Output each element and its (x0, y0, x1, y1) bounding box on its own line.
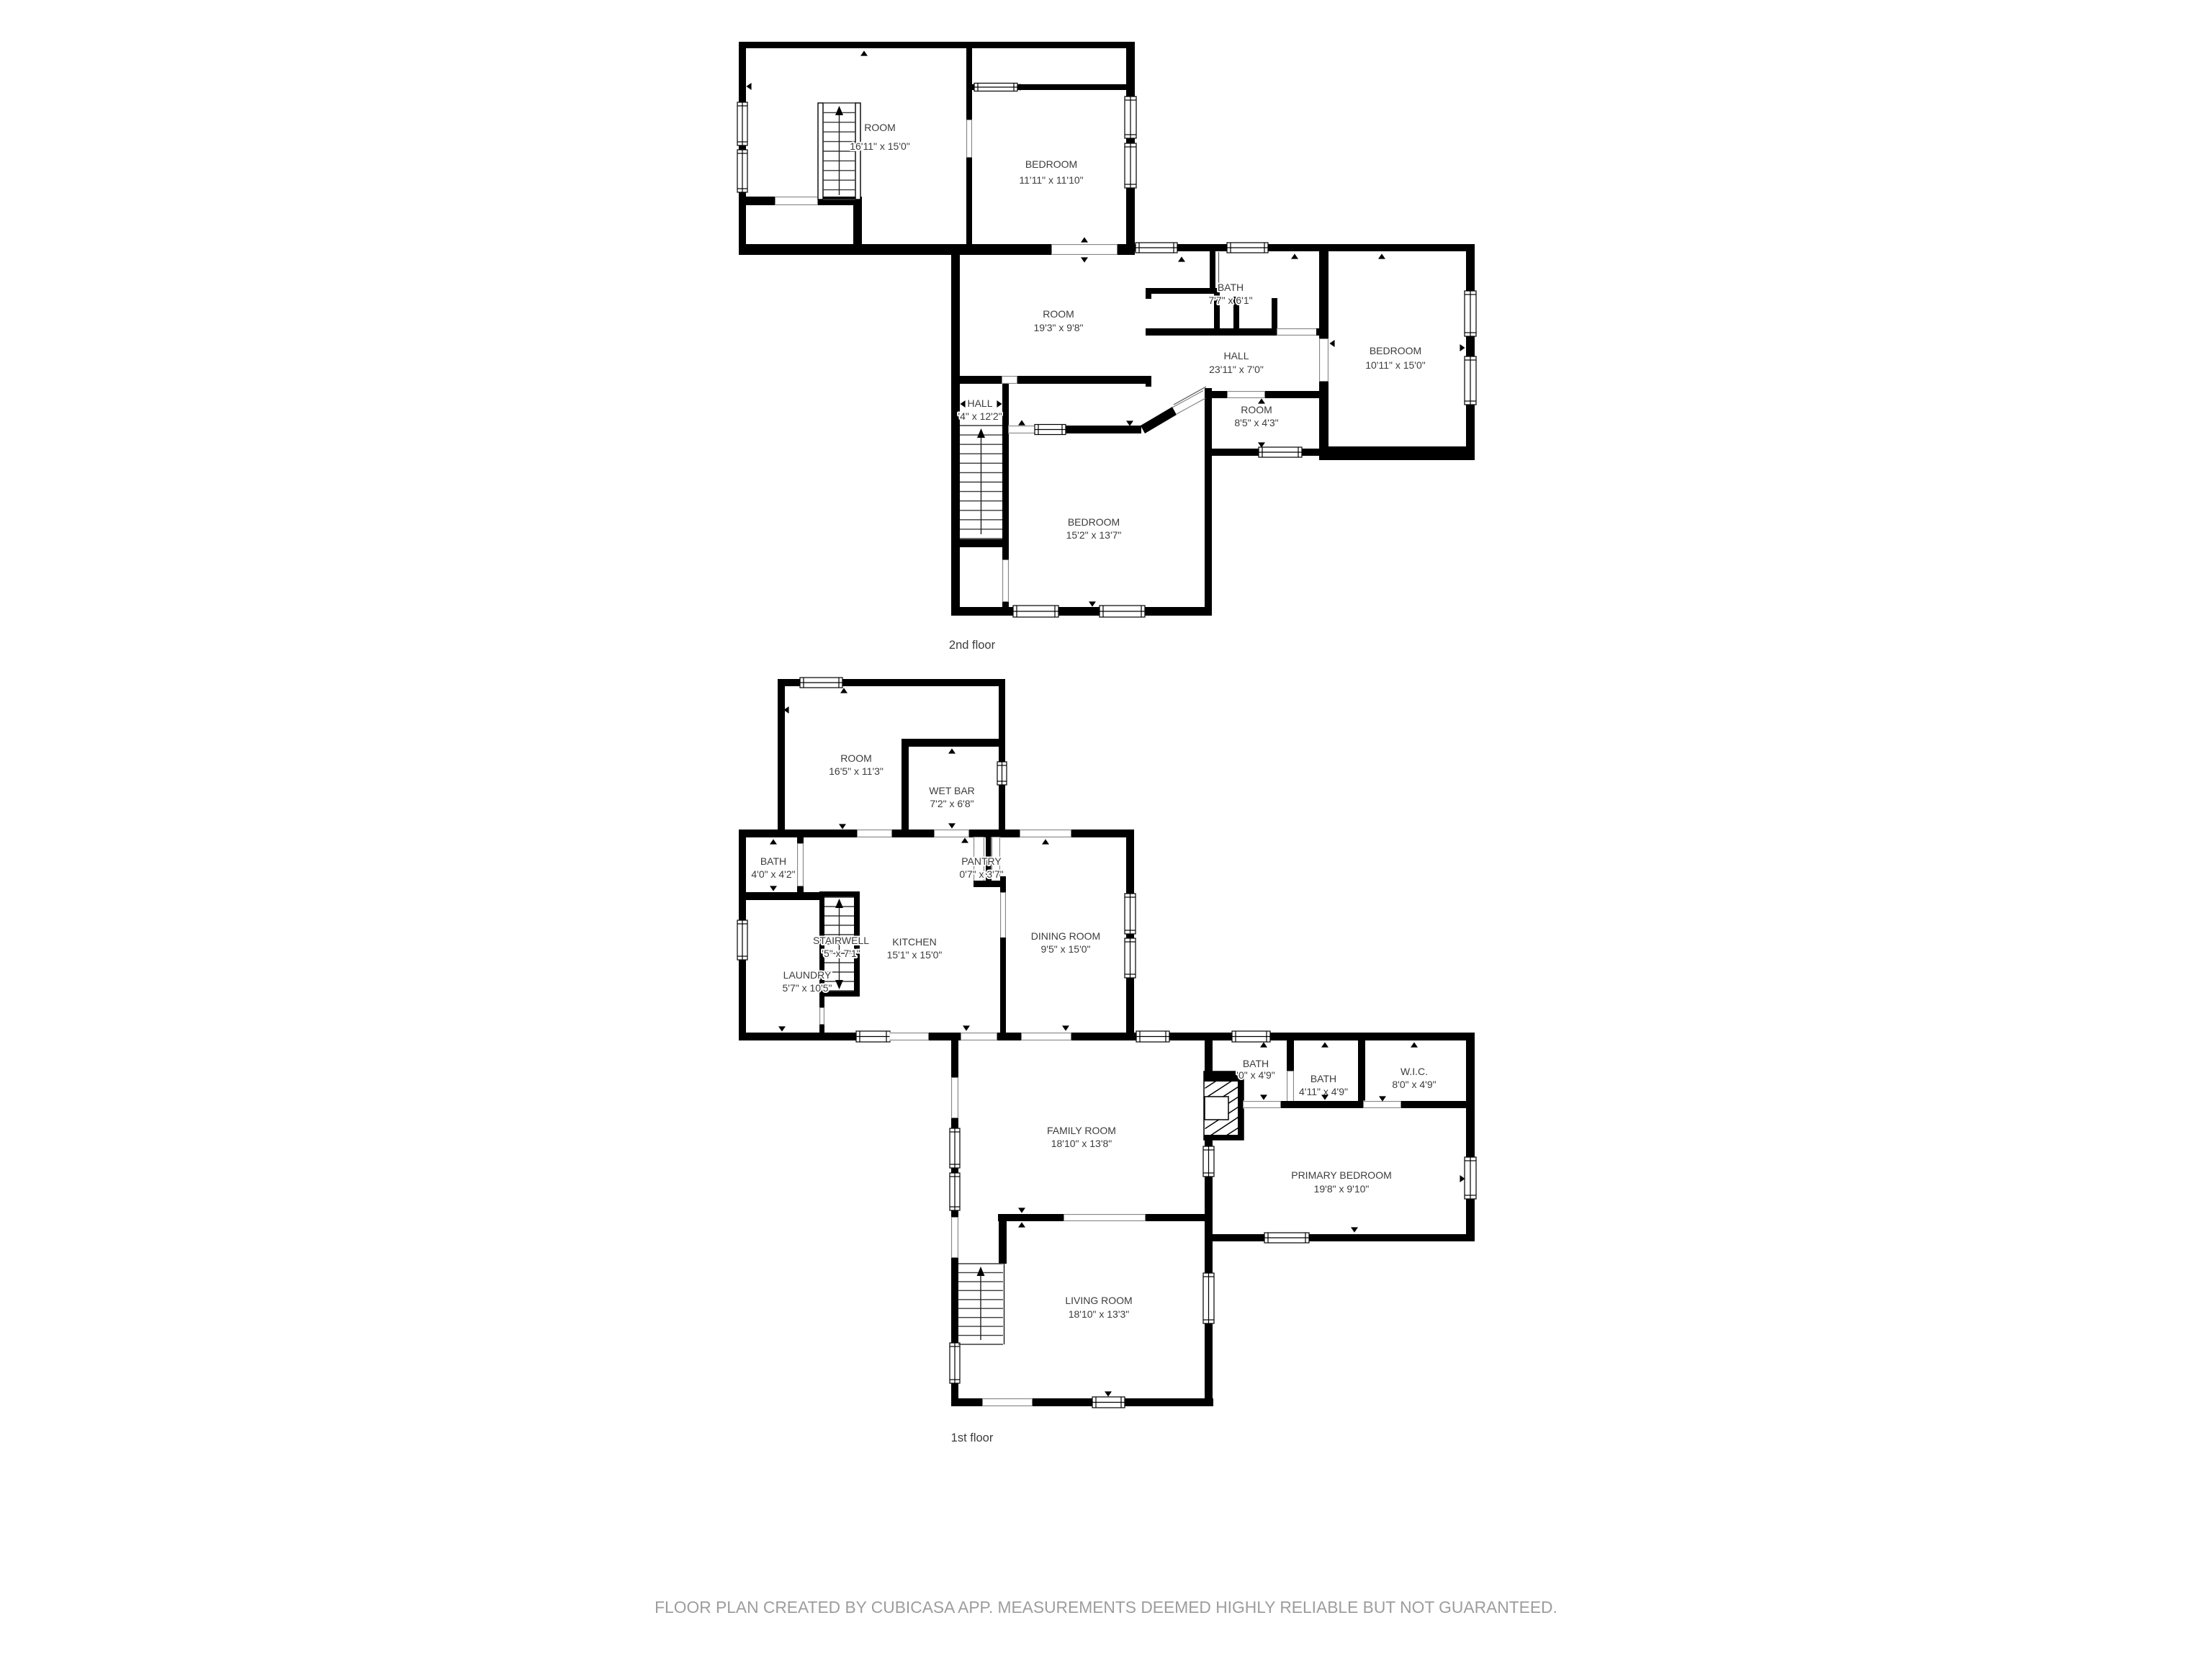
svg-text:HALL: HALL (1223, 350, 1249, 361)
svg-text:18'10" x 13'8": 18'10" x 13'8" (1051, 1138, 1112, 1149)
svg-text:BATH: BATH (1243, 1058, 1269, 1069)
svg-text:7'7" x 6'1": 7'7" x 6'1" (1208, 295, 1252, 306)
svg-text:BEDROOM: BEDROOM (1068, 516, 1120, 528)
svg-text:7'2" x 6'8": 7'2" x 6'8" (930, 798, 974, 809)
svg-text:W.I.C.: W.I.C. (1401, 1066, 1428, 1077)
svg-text:WET BAR: WET BAR (929, 785, 975, 796)
svg-text:10'11" x 15'0": 10'11" x 15'0" (1365, 359, 1426, 371)
svg-text:15'1" x 15'0": 15'1" x 15'0" (887, 949, 943, 961)
svg-text:19'8" x 9'10": 19'8" x 9'10" (1314, 1183, 1370, 1195)
svg-text:'4" x 12'2": '4" x 12'2" (958, 410, 1002, 422)
svg-text:PANTRY: PANTRY (961, 855, 1002, 867)
svg-text:FAMILY ROOM: FAMILY ROOM (1047, 1125, 1116, 1136)
svg-text:ROOM: ROOM (840, 752, 872, 764)
svg-text:16'11" x 15'0": 16'11" x 15'0" (850, 140, 910, 152)
svg-text:BATH: BATH (760, 855, 786, 867)
svg-text:5'7" x 10'5": 5'7" x 10'5" (783, 982, 832, 994)
svg-text:LIVING ROOM: LIVING ROOM (1065, 1295, 1132, 1306)
svg-text:LAUNDRY: LAUNDRY (783, 969, 832, 981)
svg-text:HALL: HALL (967, 397, 992, 409)
svg-text:4'0" x 4'2": 4'0" x 4'2" (751, 868, 795, 880)
svg-text:2nd floor: 2nd floor (949, 639, 996, 652)
svg-text:ROOM: ROOM (1241, 404, 1272, 415)
svg-text:16'5" x 11'3": 16'5" x 11'3" (829, 765, 884, 777)
svg-text:FLOOR PLAN CREATED BY CUBICASA: FLOOR PLAN CREATED BY CUBICASA APP. MEAS… (655, 1598, 1557, 1617)
svg-text:STAIRWELL: STAIRWELL (813, 935, 869, 946)
svg-text:23'11" x 7'0": 23'11" x 7'0" (1209, 364, 1264, 375)
svg-text:8'5" x 4'3": 8'5" x 4'3" (1234, 417, 1278, 428)
svg-text:DINING ROOM: DINING ROOM (1031, 930, 1100, 942)
svg-text:'5" x 7'1": '5" x 7'1" (822, 948, 860, 959)
svg-text:BATH: BATH (1218, 282, 1244, 293)
svg-text:9'5" x 15'0": 9'5" x 15'0" (1041, 943, 1091, 955)
svg-text:ROOM: ROOM (864, 122, 896, 133)
svg-text:PRIMARY BEDROOM: PRIMARY BEDROOM (1291, 1169, 1392, 1181)
svg-text:BEDROOM: BEDROOM (1370, 345, 1421, 356)
svg-text:BEDROOM: BEDROOM (1025, 158, 1077, 170)
svg-text:ROOM: ROOM (1043, 308, 1074, 320)
svg-text:BATH: BATH (1310, 1073, 1336, 1084)
svg-text:11'11" x 11'10": 11'11" x 11'10" (1019, 174, 1083, 186)
svg-text:'0" x 4'9": '0" x 4'9" (1236, 1069, 1274, 1081)
svg-text:KITCHEN: KITCHEN (892, 936, 936, 948)
svg-text:0'7" x 3'7": 0'7" x 3'7" (959, 868, 1003, 880)
svg-text:19'3" x 9'8": 19'3" x 9'8" (1034, 322, 1084, 333)
svg-text:18'10" x 13'3": 18'10" x 13'3" (1069, 1308, 1130, 1320)
svg-text:15'2" x 13'7": 15'2" x 13'7" (1066, 529, 1122, 541)
svg-text:1st floor: 1st floor (951, 1431, 994, 1444)
svg-text:8'0" x 4'9": 8'0" x 4'9" (1392, 1079, 1436, 1090)
